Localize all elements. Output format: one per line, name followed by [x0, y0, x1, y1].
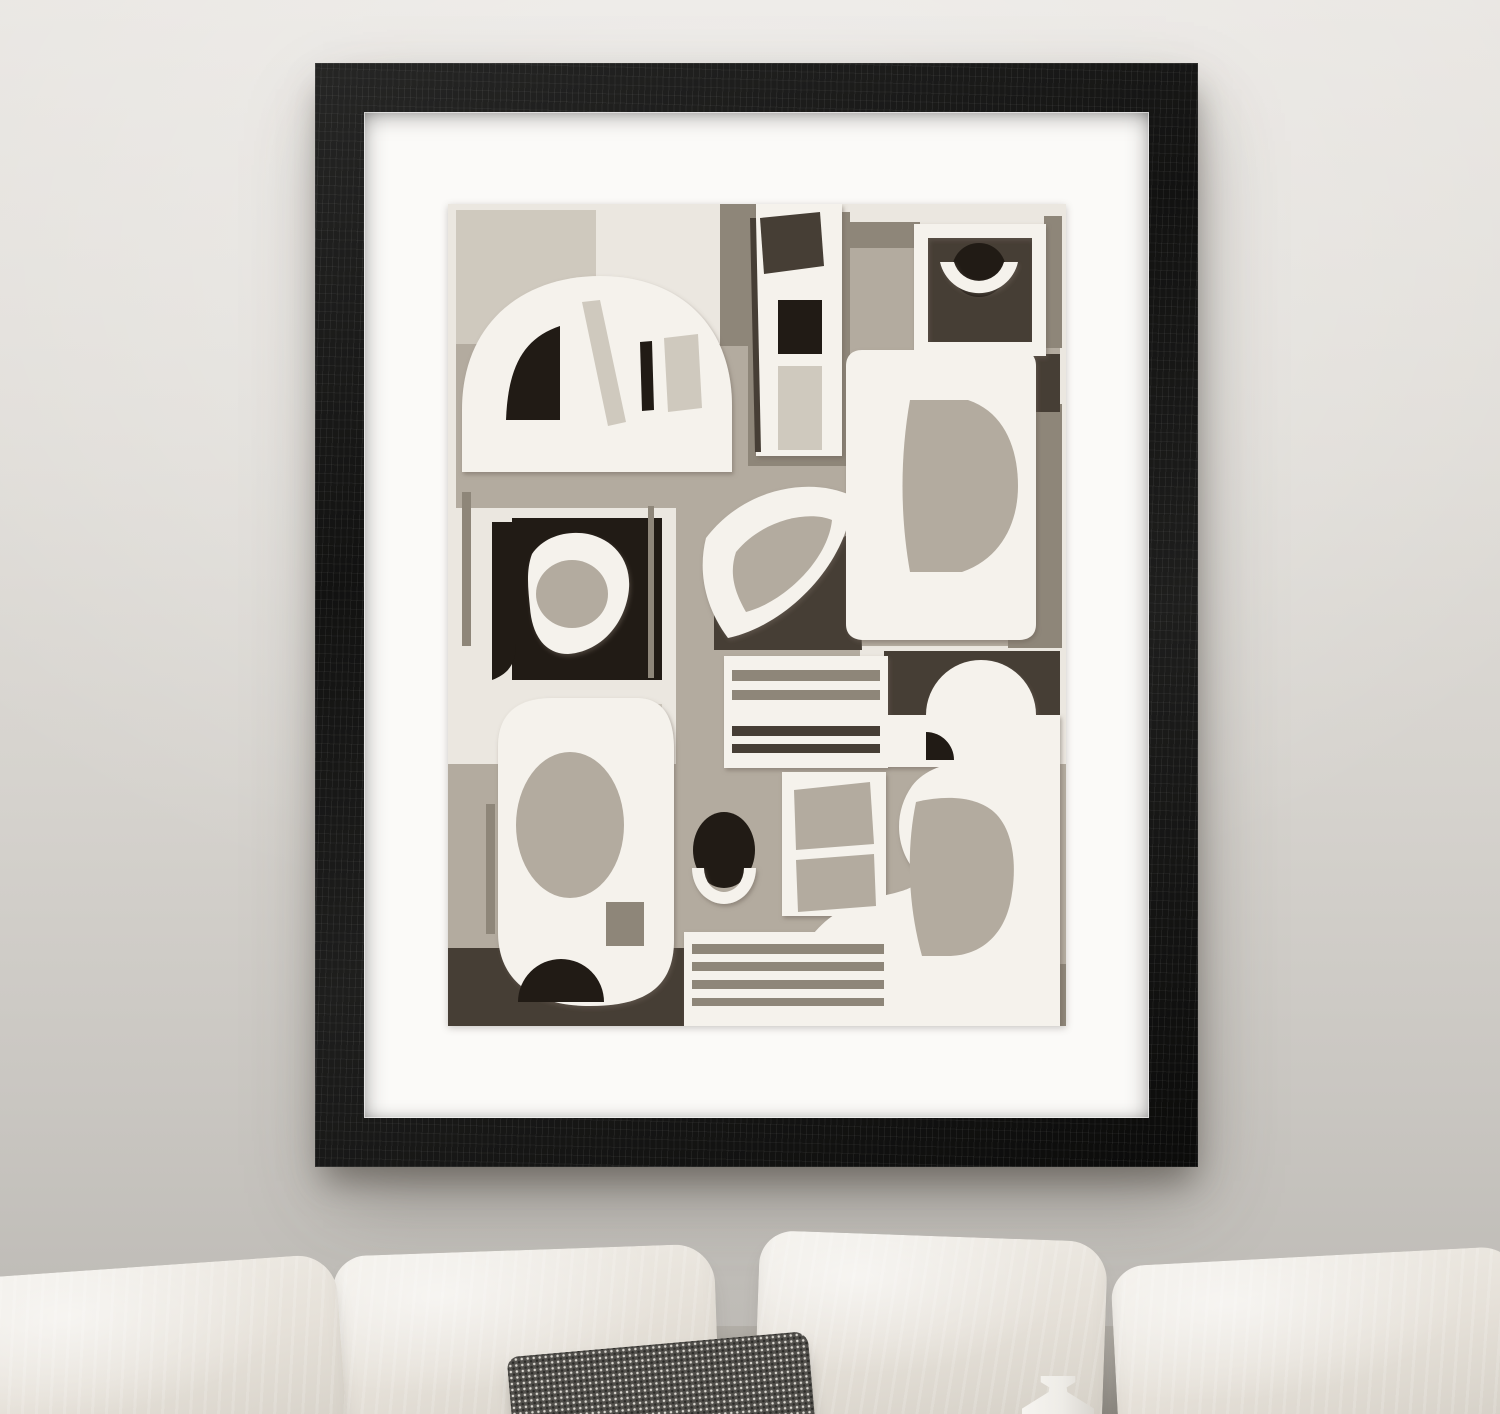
abstract-collage-artwork	[448, 204, 1066, 1026]
mat-board	[364, 112, 1149, 1118]
cushion-right	[1110, 1245, 1500, 1414]
art-print	[448, 204, 1066, 1026]
j-bar	[492, 522, 516, 680]
room-scene	[0, 0, 1500, 1414]
cushion-left	[0, 1253, 352, 1414]
picture-frame	[315, 63, 1198, 1167]
